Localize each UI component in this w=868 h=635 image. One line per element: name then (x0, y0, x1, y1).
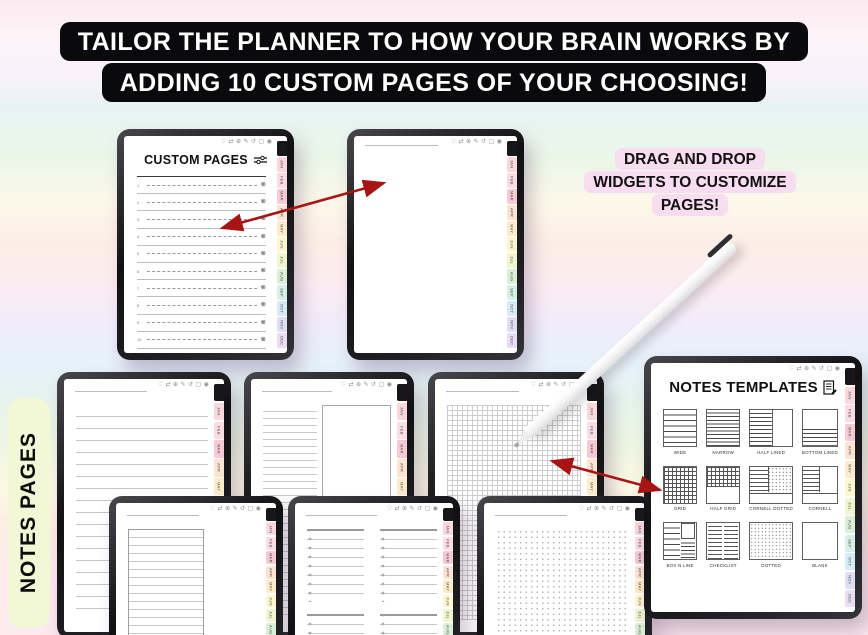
row-remove-icon[interactable]: ⊗ (261, 182, 266, 188)
record-icon[interactable]: ◉ (204, 382, 209, 389)
month-tab-label: JAN (217, 407, 222, 415)
month-tab-strip: JANFEBMARAPRMAYJUNJULAUGSEPOCTNOVDEC (266, 508, 276, 635)
page-title-line (446, 391, 519, 392)
month-tab-label: JUL (269, 611, 274, 619)
undo-icon[interactable]: ↺ (188, 382, 193, 389)
month-tab-dec[interactable]: DEC (507, 333, 517, 348)
month-tab-jan[interactable]: JAN (845, 387, 855, 404)
notes-templates-screen: ♡⇄⊕✎↺▢◉ NOTES TEMPLATES WIDENARROWHALF L… (651, 363, 855, 612)
row-dashed-line (147, 236, 257, 237)
template-label: WIDE (663, 450, 697, 455)
custom-pages-header: CUSTOM PAGES (124, 153, 287, 167)
heart-icon[interactable]: ♡ (789, 366, 794, 373)
record-icon[interactable]: ◉ (835, 366, 840, 373)
row-number: 9 (137, 320, 143, 325)
month-tab-apr[interactable]: APR (845, 442, 855, 459)
month-tab-mar[interactable]: MAR (507, 189, 517, 204)
header-banner: TAILOR THE PLANNER TO HOW YOUR BRAIN WOR… (0, 22, 868, 104)
custom-pages-list: 1⊗2⊗3⊗4⊗5⊗6⊗7⊗8⊗9⊗10⊗ (137, 176, 266, 349)
add-icon[interactable]: ⊕ (402, 506, 407, 513)
custom-page-row-10[interactable]: 10⊗ (137, 332, 266, 349)
month-tab-dec[interactable]: DEC (277, 333, 287, 348)
month-tab-label: FEB (217, 426, 222, 435)
month-tab-may[interactable]: MAY (214, 478, 224, 495)
row-number: 4 (137, 234, 143, 239)
custom-page-row-5[interactable]: 5⊗ (137, 246, 266, 263)
month-tab-mar[interactable]: MAR (277, 189, 287, 204)
month-tab-label: MAY (400, 482, 405, 491)
heart-icon[interactable]: ♡ (221, 139, 226, 146)
template-thumbnail-box-n-line[interactable] (663, 522, 697, 560)
month-tab-mar[interactable]: MAR (587, 440, 597, 457)
month-tab-label: FEB (638, 539, 643, 548)
month-tab-jul[interactable]: JUL (277, 253, 287, 268)
row-remove-icon[interactable]: ⊗ (261, 285, 266, 291)
month-tab-label: OCT (510, 304, 515, 313)
note-doc-icon (823, 380, 837, 395)
template-label: HALF LINED (749, 450, 793, 455)
index-tab[interactable] (266, 508, 276, 521)
month-tab-feb[interactable]: FEB (845, 405, 855, 422)
month-tab-mar[interactable]: MAR (214, 440, 224, 457)
row-remove-icon[interactable]: ⊗ (261, 251, 266, 257)
blank-page-tablet: ♡⇄⊕✎↺▢◉ JANFEBMARAPRMAYJUNJULAUGSEPOCTNO… (347, 129, 524, 360)
template-option-dotted[interactable]: DOTTED (749, 522, 793, 568)
month-tab-label: JUN (848, 483, 853, 492)
notes-templates-header: NOTES TEMPLATES (651, 379, 855, 396)
custom-page-row-4[interactable]: 4⊗ (137, 229, 266, 246)
template-label: HALF GRID (706, 506, 740, 511)
month-tab-label: JUN (446, 597, 451, 606)
row-dashed-line (147, 339, 257, 340)
month-tab-label: JAN (590, 407, 595, 415)
month-tab-label: MAY (269, 582, 274, 591)
month-tab-feb[interactable]: FEB (277, 173, 287, 188)
page-title-line (262, 391, 332, 392)
month-tab-nov[interactable]: NOV (845, 572, 855, 589)
row-remove-icon[interactable]: ⊗ (261, 302, 266, 308)
row-remove-icon[interactable]: ⊗ (261, 337, 266, 343)
month-tab-jan[interactable]: JAN (266, 522, 276, 535)
checklist-section (380, 614, 437, 635)
month-tab-apr[interactable]: APR (397, 459, 407, 476)
transfer-icon[interactable]: ⇄ (217, 506, 222, 513)
template-option-blank[interactable]: BLANK (802, 522, 838, 568)
month-tab-may[interactable]: MAY (266, 580, 276, 593)
month-tab-jun[interactable]: JUN (266, 595, 276, 608)
transfer-icon[interactable]: ⇄ (458, 139, 463, 146)
transfer-icon[interactable]: ⇄ (348, 382, 353, 389)
custom-page-row-8[interactable]: 8⊗ (137, 297, 266, 314)
month-tab-label: JAN (638, 525, 643, 533)
row-remove-icon[interactable]: ⊗ (261, 268, 266, 274)
month-tab-sep[interactable]: SEP (507, 285, 517, 300)
row-dashed-line (147, 202, 257, 203)
month-tab-label: AUG (848, 520, 853, 530)
template-thumbnail-checklist[interactable] (706, 522, 740, 560)
transfer-icon[interactable]: ⇄ (228, 139, 233, 146)
heart-icon[interactable]: ♡ (579, 506, 584, 513)
month-tab-label: NOV (510, 320, 515, 330)
template-option-bottom-lined[interactable]: BOTTOM LINED (802, 409, 838, 455)
record-icon[interactable]: ◉ (625, 506, 630, 513)
callout-line-3: PAGES! (652, 194, 728, 216)
transfer-icon[interactable]: ⇄ (394, 506, 399, 513)
pen-icon[interactable]: ✎ (602, 506, 607, 513)
month-tab-oct[interactable]: OCT (507, 301, 517, 316)
template-option-cornell[interactable]: CORNELL (802, 466, 838, 512)
month-tab-apr[interactable]: APR (214, 459, 224, 476)
template-thumbnail-cornell-dotted[interactable] (749, 466, 793, 504)
undo-icon[interactable]: ↺ (417, 506, 422, 513)
add-icon[interactable]: ⊕ (804, 366, 809, 373)
month-tab-label: JUN (510, 240, 515, 249)
heart-icon[interactable]: ♡ (387, 506, 392, 513)
record-icon[interactable]: ◉ (387, 382, 392, 389)
month-tab-label: MAY (638, 582, 643, 591)
page-title-line (127, 515, 199, 516)
header-line-1: TAILOR THE PLANNER TO HOW YOUR BRAIN WOR… (60, 22, 808, 61)
template-thumbnail-narrow[interactable] (706, 409, 740, 447)
index-tab[interactable] (397, 384, 407, 401)
month-tab-label: JUL (280, 256, 285, 264)
month-tab-label: AUG (510, 272, 515, 282)
add-icon[interactable]: ⊕ (173, 382, 178, 389)
box-line-page-content (128, 529, 260, 635)
month-tab-may[interactable]: MAY (845, 461, 855, 478)
undo-icon[interactable]: ↺ (609, 506, 614, 513)
row-number: 3 (137, 217, 143, 222)
custom-page-row-3[interactable]: 3⊗ (137, 211, 266, 228)
month-tab-jul[interactable]: JUL (635, 609, 645, 622)
month-tab-label: FEB (280, 176, 285, 185)
heart-icon[interactable]: ♡ (210, 506, 215, 513)
row-dashed-line (147, 219, 257, 220)
template-option-cornell-dotted[interactable]: CORNELL DOTTED (749, 466, 793, 512)
month-tab-label: APR (280, 208, 285, 217)
row-dashed-line (147, 253, 257, 254)
checklist-section (307, 614, 364, 635)
undo-icon[interactable]: ↺ (371, 382, 376, 389)
month-tab-oct[interactable]: OCT (845, 553, 855, 570)
month-tab-label: DEC (280, 336, 285, 345)
template-label: CHECKLIST (706, 563, 740, 568)
blank-page-screen: ♡⇄⊕✎↺▢◉ JANFEBMARAPRMAYJUNJULAUGSEPOCTNO… (354, 136, 517, 353)
month-tab-label: SEP (848, 539, 853, 548)
month-tab-oct[interactable]: OCT (277, 301, 287, 316)
add-icon[interactable]: ⊕ (225, 506, 230, 513)
month-tab-mar[interactable]: MAR (443, 551, 453, 564)
month-tab-nov[interactable]: NOV (277, 317, 287, 332)
month-tab-feb[interactable]: FEB (443, 537, 453, 550)
month-tab-apr[interactable]: APR (587, 459, 597, 476)
row-remove-icon[interactable]: ⊗ (261, 216, 266, 222)
row-remove-icon[interactable]: ⊗ (261, 320, 266, 326)
template-label: DOTTED (749, 563, 793, 568)
undo-icon[interactable]: ↺ (240, 506, 245, 513)
month-tab-label: APR (269, 568, 274, 577)
month-tab-label: APR (400, 463, 405, 472)
page-toolbar: ♡⇄⊕✎↺▢◉ (387, 506, 438, 513)
template-label: CORNELL DOTTED (749, 506, 793, 511)
month-tab-label: JUL (510, 256, 515, 264)
template-thumbnail-blank[interactable] (802, 522, 838, 560)
record-icon[interactable]: ◉ (256, 506, 261, 513)
month-tab-label: NOV (280, 320, 285, 330)
month-tab-may[interactable]: MAY (507, 221, 517, 236)
pen-icon[interactable]: ✎ (181, 382, 186, 389)
page-toolbar: ♡⇄⊕✎↺▢◉ (341, 382, 392, 389)
template-thumbnail-wide[interactable] (663, 409, 697, 447)
shape-icon[interactable]: ▢ (196, 382, 202, 389)
undo-icon[interactable]: ↺ (819, 366, 824, 373)
transfer-icon[interactable]: ⇄ (538, 382, 543, 389)
record-icon[interactable]: ◉ (433, 506, 438, 513)
page-title-line (306, 515, 377, 516)
month-tab-label: MAY (510, 224, 515, 233)
month-tab-label: DEC (848, 594, 853, 603)
month-tab-label: MAR (590, 444, 595, 454)
pen-icon[interactable]: ✎ (554, 382, 559, 389)
row-number: 8 (137, 303, 143, 308)
row-number: 7 (137, 286, 143, 291)
record-icon[interactable]: ◉ (497, 139, 502, 146)
checklist-section (307, 529, 364, 602)
templates-grid: WIDENARROWHALF LINEDBOTTOM LINEDGRIDHALF… (663, 409, 838, 568)
month-tab-sep[interactable]: SEP (845, 535, 855, 552)
custom-pages-screen: ♡⇄⊕✎↺▢◉ CUSTOM PAGES 1⊗2⊗3⊗4⊗5⊗6⊗7⊗8⊗9⊗1… (124, 136, 287, 353)
month-tab-may[interactable]: MAY (277, 221, 287, 236)
month-tab-label: JUL (638, 611, 643, 619)
pen-icon[interactable]: ✎ (244, 139, 249, 146)
index-tab[interactable] (277, 141, 287, 156)
index-tab[interactable] (507, 141, 517, 156)
heart-icon[interactable]: ♡ (451, 139, 456, 146)
pen-icon[interactable]: ✎ (812, 366, 817, 373)
notes-pages-label: NOTES PAGES (8, 398, 50, 628)
add-icon[interactable]: ⊕ (356, 382, 361, 389)
month-tab-label: FEB (590, 426, 595, 435)
shape-icon[interactable]: ▢ (827, 366, 833, 373)
template-option-half-lined[interactable]: HALF LINED (749, 409, 793, 455)
row-dashed-line (147, 271, 257, 272)
month-tab-label: MAR (280, 191, 285, 201)
month-tab-apr[interactable]: APR (443, 566, 453, 579)
custom-page-row-6[interactable]: 6⊗ (137, 263, 266, 280)
row-remove-icon[interactable]: ⊗ (261, 199, 266, 205)
index-tab[interactable] (214, 384, 224, 401)
promo-canvas: TAILOR THE PLANNER TO HOW YOUR BRAIN WOR… (0, 0, 868, 635)
month-tab-may[interactable]: MAY (443, 580, 453, 593)
row-remove-icon[interactable]: ⊗ (261, 234, 266, 240)
header-line-2: ADDING 10 CUSTOM PAGES OF YOUR CHOOSING! (102, 63, 767, 102)
add-icon[interactable]: ⊕ (466, 139, 471, 146)
custom-page-row-2[interactable]: 2⊗ (137, 194, 266, 211)
callout-line-2: WIDGETS TO CUSTOMIZE (584, 171, 795, 193)
add-icon[interactable]: ⊕ (236, 139, 241, 146)
page-toolbar: ♡⇄⊕✎↺▢◉ (221, 139, 272, 146)
transfer-icon[interactable]: ⇄ (796, 366, 801, 373)
custom-page-row-7[interactable]: 7⊗ (137, 280, 266, 297)
template-thumbnail-grid[interactable] (663, 466, 697, 504)
month-tab-mar[interactable]: MAR (845, 424, 855, 441)
heart-icon[interactable]: ♡ (531, 382, 536, 389)
month-tab-mar[interactable]: MAR (397, 440, 407, 457)
month-tab-jan[interactable]: JAN (587, 403, 597, 420)
month-tab-strip: JANFEBMARAPRMAYJUNJULAUGSEPOCTNOVDEC (507, 141, 517, 348)
callout-line-1: DRAG AND DROP (615, 148, 765, 170)
custom-page-row-1[interactable]: 1⊗ (137, 177, 266, 194)
template-option-box-n-line[interactable]: BOX N LINE (663, 522, 697, 568)
month-tab-jan[interactable]: JAN (443, 522, 453, 535)
month-tab-feb[interactable]: FEB (214, 422, 224, 439)
month-tab-aug[interactable]: AUG (266, 623, 276, 635)
month-tab-label: DEC (510, 336, 515, 345)
month-tab-may[interactable]: MAY (397, 478, 407, 495)
month-tab-aug[interactable]: AUG (635, 623, 645, 635)
pen-icon[interactable]: ✎ (364, 382, 369, 389)
month-tab-jul[interactable]: JUL (266, 609, 276, 622)
month-tab-feb[interactable]: FEB (397, 422, 407, 439)
box-line-page-screen: ♡⇄⊕✎↺▢◉ JANFEBMARAPRMAYJUNJULAUGSEPOCTNO… (116, 503, 276, 635)
notes-templates-tablet: ♡⇄⊕✎↺▢◉ NOTES TEMPLATES WIDENARROWHALF L… (644, 356, 862, 619)
page-toolbar: ♡⇄⊕✎↺▢◉ (451, 139, 502, 146)
month-tab-label: JUN (638, 597, 643, 606)
month-tab-jan[interactable]: JAN (397, 403, 407, 420)
heart-icon[interactable]: ♡ (341, 382, 346, 389)
row-number: 5 (137, 251, 143, 256)
template-thumbnail-cornell[interactable] (802, 466, 838, 504)
pen-icon[interactable]: ✎ (474, 139, 479, 146)
undo-icon[interactable]: ↺ (561, 382, 566, 389)
template-label: BOTTOM LINED (802, 450, 838, 455)
index-tab[interactable] (845, 368, 855, 385)
month-tab-label: MAY (590, 482, 595, 491)
month-tab-apr[interactable]: APR (266, 566, 276, 579)
drag-drop-callout: DRAG AND DROP WIDGETS TO CUSTOMIZE PAGES… (556, 148, 824, 217)
template-option-wide[interactable]: WIDE (663, 409, 697, 455)
month-tab-label: APR (217, 463, 222, 472)
month-tab-label: MAY (280, 224, 285, 233)
month-tab-jan[interactable]: JAN (507, 157, 517, 172)
row-dashed-line (147, 305, 257, 306)
month-tab-jul[interactable]: JUL (507, 253, 517, 268)
add-icon[interactable]: ⊕ (546, 382, 551, 389)
template-option-grid[interactable]: GRID (663, 466, 697, 512)
template-option-narrow[interactable]: NARROW (706, 409, 740, 455)
month-tab-label: FEB (510, 176, 515, 185)
add-icon[interactable]: ⊕ (594, 506, 599, 513)
month-tab-label: JUN (280, 240, 285, 249)
transfer-icon[interactable]: ⇄ (586, 506, 591, 513)
row-dashed-line (147, 288, 257, 289)
month-tab-aug[interactable]: AUG (507, 269, 517, 284)
month-tab-feb[interactable]: FEB (266, 537, 276, 550)
shape-icon[interactable]: ▢ (248, 506, 254, 513)
month-tab-may[interactable]: MAY (587, 478, 597, 495)
sliders-icon[interactable] (254, 155, 267, 165)
shape-icon[interactable]: ▢ (259, 139, 265, 146)
month-tab-jun[interactable]: JUN (277, 237, 287, 252)
month-tab-label: APR (590, 463, 595, 472)
month-tab-mar[interactable]: MAR (266, 551, 276, 564)
custom-page-row-9[interactable]: 9⊗ (137, 315, 266, 332)
month-tab-label: FEB (269, 539, 274, 548)
month-tab-aug[interactable]: AUG (443, 623, 453, 635)
month-tab-aug[interactable]: AUG (277, 269, 287, 284)
month-tab-sep[interactable]: SEP (277, 285, 287, 300)
heart-icon[interactable]: ♡ (158, 382, 163, 389)
month-tab-feb[interactable]: FEB (507, 173, 517, 188)
month-tab-label: JUL (848, 502, 853, 510)
month-tab-jun[interactable]: JUN (845, 479, 855, 496)
template-label: GRID (663, 506, 697, 511)
month-tab-jan[interactable]: JAN (277, 157, 287, 172)
month-tab-jun[interactable]: JUN (443, 595, 453, 608)
month-tab-apr[interactable]: APR (277, 205, 287, 220)
template-label: BOX N LINE (663, 563, 697, 568)
template-option-checklist[interactable]: CHECKLIST (706, 522, 740, 568)
month-tab-label: AUG (280, 272, 285, 282)
month-tab-label: MAR (638, 553, 643, 563)
month-tab-label: JAN (269, 525, 274, 533)
template-label: NARROW (706, 450, 740, 455)
pen-icon[interactable]: ✎ (233, 506, 238, 513)
month-tab-nov[interactable]: NOV (507, 317, 517, 332)
month-tab-jun[interactable]: JUN (507, 237, 517, 252)
month-tab-label: JAN (446, 525, 451, 533)
shape-icon[interactable]: ▢ (379, 382, 385, 389)
dotted-page-content (496, 529, 629, 635)
month-tab-apr[interactable]: APR (507, 205, 517, 220)
month-tab-aug[interactable]: AUG (845, 516, 855, 533)
template-thumbnail-bottom-lined[interactable] (802, 409, 838, 447)
undo-icon[interactable]: ↺ (251, 139, 256, 146)
month-tab-label: APR (446, 568, 451, 577)
shape-icon[interactable]: ▢ (617, 506, 623, 513)
month-tab-jan[interactable]: JAN (214, 403, 224, 420)
template-option-half-grid[interactable]: HALF GRID (706, 466, 740, 512)
pen-icon[interactable]: ✎ (410, 506, 415, 513)
month-tab-strip: JANFEBMARAPRMAYJUNJULAUGSEPOCTNOVDEC (443, 508, 453, 635)
month-tab-label: FEB (848, 409, 853, 418)
month-tab-label: OCT (848, 557, 853, 566)
undo-icon[interactable]: ↺ (481, 139, 486, 146)
lined-box (128, 529, 204, 635)
month-tab-jul[interactable]: JUL (443, 609, 453, 622)
month-tab-label: OCT (280, 304, 285, 313)
template-thumbnail-dotted[interactable] (749, 522, 793, 560)
page-toolbar: ♡⇄⊕✎↺▢◉ (579, 506, 630, 513)
month-tab-label: JUL (446, 611, 451, 619)
month-tab-dec[interactable]: DEC (845, 590, 855, 607)
row-dashed-line (147, 185, 257, 186)
shape-icon[interactable]: ▢ (489, 139, 495, 146)
month-tab-label: APR (510, 208, 515, 217)
month-tab-label: MAR (446, 553, 451, 563)
template-thumbnail-half-grid[interactable] (706, 466, 740, 504)
shape-icon[interactable]: ▢ (425, 506, 431, 513)
month-tab-jul[interactable]: JUL (845, 498, 855, 515)
transfer-icon[interactable]: ⇄ (165, 382, 170, 389)
template-thumbnail-half-lined[interactable] (749, 409, 793, 447)
month-tab-feb[interactable]: FEB (587, 422, 597, 439)
month-tab-label: APR (848, 446, 853, 455)
record-icon[interactable]: ◉ (267, 139, 272, 146)
month-tab-label: FEB (400, 426, 405, 435)
month-tab-label: MAR (848, 427, 853, 437)
index-tab[interactable] (443, 508, 453, 521)
